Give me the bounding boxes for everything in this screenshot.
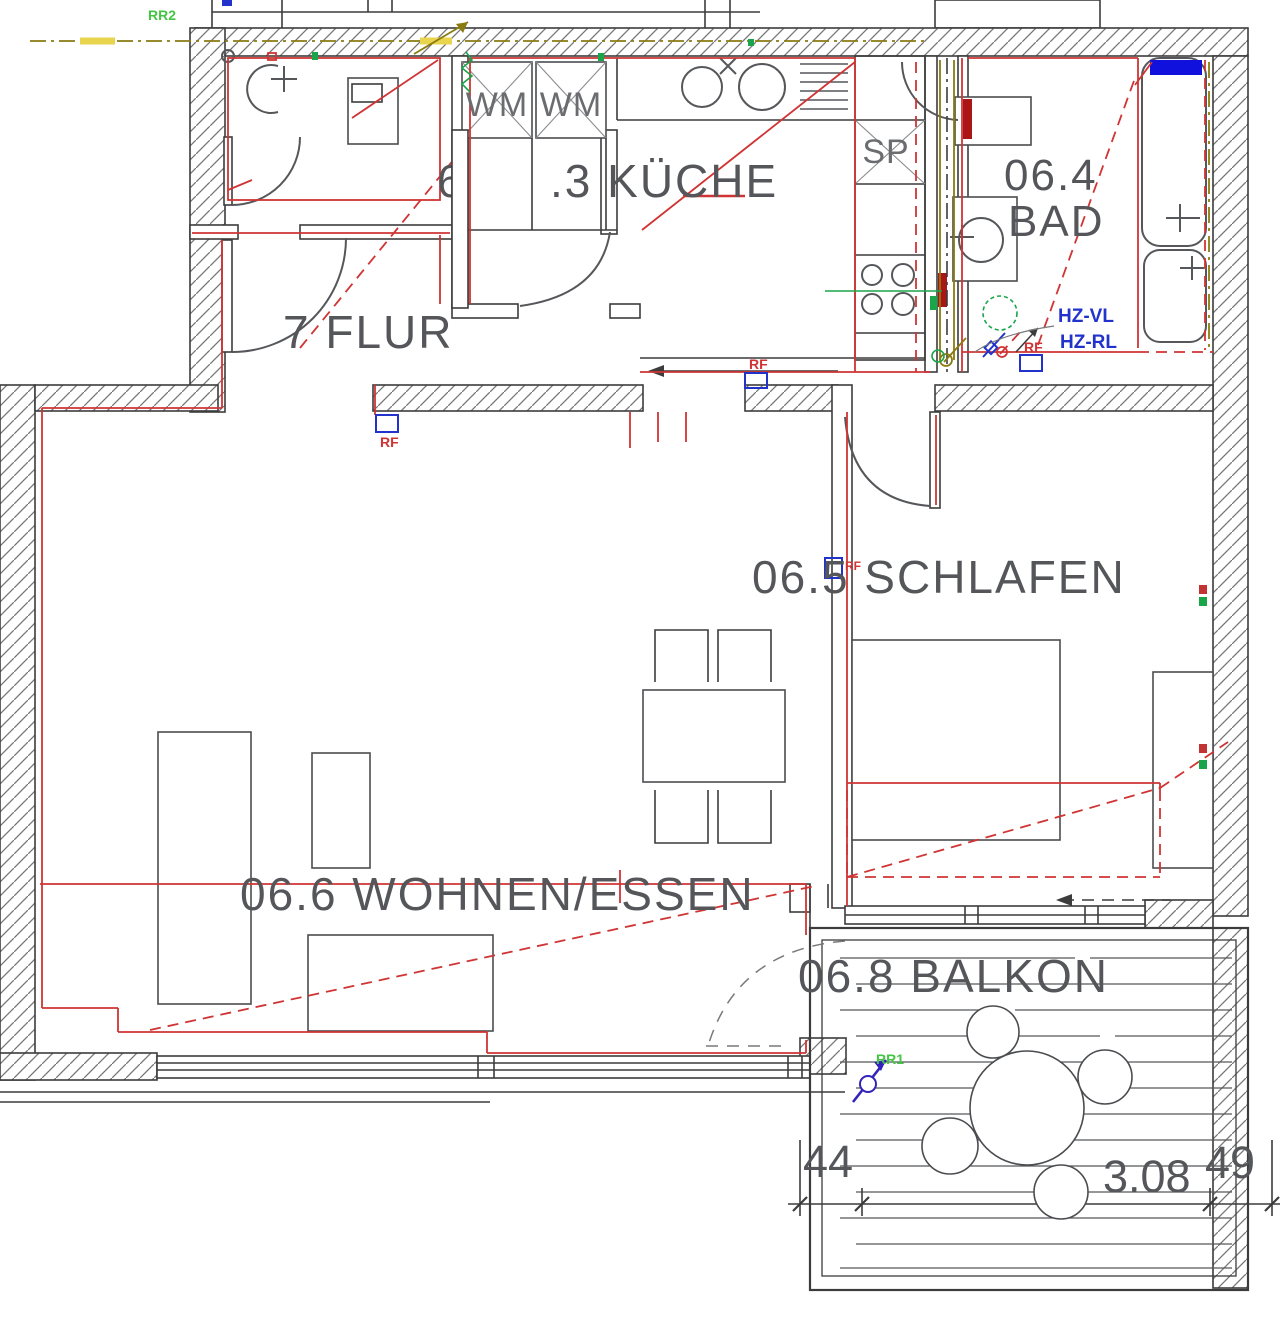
sideboard bbox=[308, 935, 493, 1031]
shower-tray bbox=[1144, 250, 1206, 342]
marker-rr1: RR1 bbox=[876, 1051, 904, 1067]
dimension-left: 44 bbox=[803, 1136, 853, 1187]
living-furniture bbox=[158, 630, 785, 1031]
stove-burners bbox=[862, 264, 914, 315]
marker-rf-bad: RF bbox=[1024, 339, 1043, 355]
kitchen-sink-bowl bbox=[682, 67, 722, 107]
wc-door-arc bbox=[232, 137, 300, 205]
marker-rr2: RR2 bbox=[148, 7, 176, 23]
entry-door-leaf bbox=[222, 240, 232, 352]
room-label-kueche: .3 KÜCHE bbox=[550, 155, 778, 207]
adjacent-structure-lines bbox=[212, 0, 1100, 28]
balcony-chair bbox=[922, 1118, 978, 1174]
appliance-label-sp: SP bbox=[862, 133, 909, 171]
room-label-bad: BAD bbox=[1008, 197, 1104, 246]
balcony-chair bbox=[967, 1006, 1019, 1058]
floor-plan-drawing: 6 .3 KÜCHE 06.4 BAD 7 FLUR 06.5 SCHLAFEN… bbox=[0, 0, 1280, 1319]
appliance-label-wm-left: WM bbox=[466, 86, 528, 124]
kitchen-sink-bowl bbox=[739, 64, 785, 110]
balcony-chair bbox=[1034, 1165, 1088, 1219]
tub-drain-cross bbox=[1166, 204, 1200, 232]
room-label-bad-number: 06.4 bbox=[1004, 151, 1098, 200]
heating-label-hz-rl: HZ-RL bbox=[1060, 332, 1117, 353]
wc-fixtures bbox=[222, 50, 398, 144]
dining-table bbox=[643, 690, 785, 782]
bed bbox=[852, 640, 1060, 840]
room-label-wohnen-essen: 06.6 WOHNEN/ESSEN bbox=[240, 868, 755, 920]
floor-plan-page: 6 .3 KÜCHE 06.4 BAD 7 FLUR 06.5 SCHLAFEN… bbox=[0, 0, 1280, 1319]
sofa bbox=[158, 732, 251, 1004]
marker-rf-flur: RF bbox=[380, 434, 399, 450]
bedroom-door-arc bbox=[845, 417, 930, 506]
riser-mark-blue bbox=[222, 0, 232, 6]
kitchen-door-arc bbox=[520, 232, 610, 306]
dimension-right: 49 bbox=[1205, 1137, 1255, 1188]
room-label-schlafen: 06.5 SCHLAFEN bbox=[752, 551, 1126, 603]
kitchen-counter bbox=[617, 56, 925, 360]
wall-overlay bbox=[452, 130, 468, 308]
bedroom-furniture bbox=[852, 640, 1213, 868]
armchair bbox=[312, 753, 370, 868]
appliance-label-wm-right: WM bbox=[540, 86, 602, 124]
room-label-balkon: 06.8 BALKON bbox=[798, 950, 1109, 1002]
wardrobe bbox=[1153, 672, 1213, 868]
bathtub-faucet bbox=[1150, 60, 1202, 75]
marker-rf-kueche: RF bbox=[749, 356, 768, 372]
balcony-table bbox=[970, 1051, 1084, 1165]
shower-drain-cross bbox=[1180, 256, 1204, 280]
balcony-table-set bbox=[922, 1006, 1132, 1219]
room-label-flur: 7 FLUR bbox=[283, 306, 453, 358]
dimension-main: 3.08 bbox=[1103, 1151, 1191, 1202]
faucet-cross-icon bbox=[720, 58, 736, 74]
window-bedroom-south bbox=[845, 906, 1145, 924]
balcony-chair bbox=[1078, 1050, 1132, 1104]
bedroom-door-leaf bbox=[930, 412, 940, 508]
heating-label-hz-vl: HZ-VL bbox=[1058, 306, 1114, 327]
marker-rf-schlafen: RF bbox=[845, 559, 861, 573]
riser-mark-red bbox=[963, 99, 972, 139]
